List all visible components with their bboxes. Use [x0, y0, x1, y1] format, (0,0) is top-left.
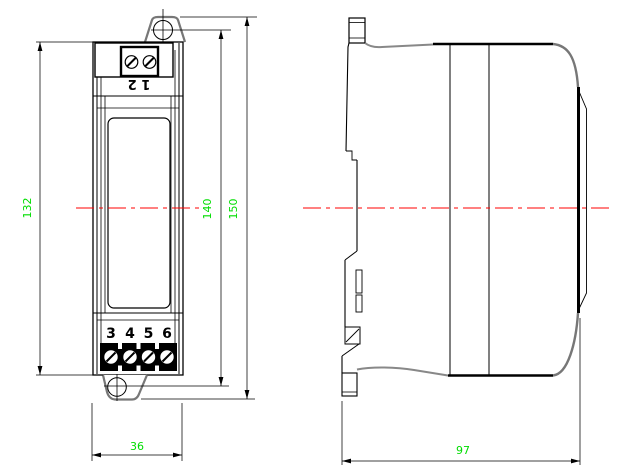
clip-chamfer: [345, 251, 357, 260]
arrowhead: [173, 453, 182, 458]
arrowhead: [342, 459, 351, 464]
dimension-value: 97: [456, 444, 470, 457]
left-edge-upper: [346, 43, 349, 151]
terminal-gap: [155, 366, 159, 372]
clip-slot: [356, 270, 362, 293]
technical-drawing: 1 2 3 4 5 6: [0, 0, 626, 466]
terminal-gap: [118, 343, 122, 349]
clip-slot: [356, 295, 362, 312]
bottom-mounting-tab: [103, 375, 147, 400]
terminal-label: 4: [125, 326, 135, 342]
arrowhead: [38, 42, 43, 51]
arrowhead: [92, 453, 101, 458]
front-view: 1 2 3 4 5 6: [93, 9, 185, 401]
side-view: [342, 18, 587, 396]
terminal-gap: [137, 343, 141, 349]
arrowhead: [245, 17, 250, 26]
terminal-label: 3: [106, 326, 116, 342]
terminal-gap: [155, 343, 159, 349]
bottom-edge-curve-left: [357, 367, 448, 375]
arrowhead: [571, 459, 580, 464]
dimension-value: 150: [227, 199, 240, 220]
side-mounting-tab: [349, 18, 365, 43]
bottom-edge-curve-right: [553, 313, 578, 376]
arrowhead: [245, 390, 250, 399]
terminal-gap: [118, 366, 122, 372]
dimension-value: 132: [21, 198, 34, 219]
top-edge-curve-left: [365, 43, 433, 47]
arrowhead: [219, 30, 224, 39]
dimension-97: 97: [342, 318, 580, 465]
top-edge-curve-right: [553, 44, 578, 87]
dimension-36: 36: [92, 403, 182, 461]
clip-lower-diagonal: [342, 344, 359, 356]
arrowhead: [219, 377, 224, 386]
terminal-gap: [137, 366, 141, 372]
drawing-canvas: 1 2 3 4 5 6: [0, 0, 626, 466]
terminal-label-top: 1 2: [128, 76, 151, 91]
label-window: [108, 118, 170, 308]
terminal-label: 6: [162, 326, 172, 342]
terminal-label: 5: [144, 326, 154, 342]
dimension-value: 140: [201, 199, 214, 220]
dimension-value: 36: [130, 440, 144, 453]
clip-foot: [342, 373, 357, 396]
left-edge-notch: [346, 151, 357, 160]
arrowhead: [38, 366, 43, 375]
